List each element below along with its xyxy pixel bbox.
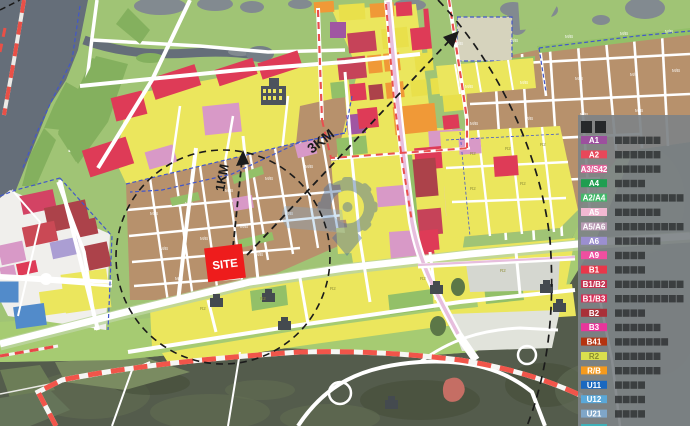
svg-text:A1: A1: [589, 136, 600, 145]
svg-text:B41: B41: [587, 338, 602, 347]
svg-text:B1/B2: B1/B2: [583, 280, 606, 289]
svg-text:A5/A6: A5/A6: [583, 222, 606, 231]
svg-text:U11: U11: [587, 381, 602, 390]
svg-text:A2/A4: A2/A4: [583, 194, 606, 203]
svg-text:R2: R2: [589, 352, 600, 361]
svg-text:A9: A9: [589, 251, 600, 260]
svg-text:U21: U21: [587, 410, 602, 419]
svg-text:A3/S42: A3/S42: [581, 165, 608, 174]
svg-text:U12: U12: [587, 395, 602, 404]
svg-text:A2: A2: [589, 150, 600, 159]
svg-text:A4: A4: [589, 179, 600, 188]
svg-text:R/B: R/B: [587, 366, 601, 375]
svg-text:A6: A6: [589, 237, 600, 246]
svg-text:B3: B3: [589, 323, 600, 332]
svg-text:B1/B3: B1/B3: [583, 294, 606, 303]
svg-text:B2: B2: [589, 309, 600, 318]
svg-text:B1: B1: [589, 266, 600, 275]
svg-text:A5: A5: [589, 208, 600, 217]
